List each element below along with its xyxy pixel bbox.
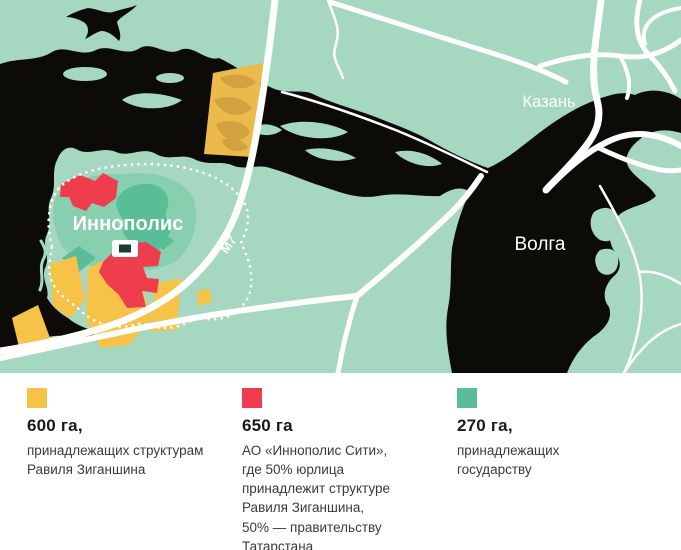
legend-swatch-red: [242, 388, 262, 408]
label-city: Казань: [522, 93, 575, 111]
legend-item-innopolis-city: 650 га АО «Иннополис Сити», где 50% юрли…: [242, 388, 447, 550]
infographic: Иннополис Казань Волга М7 600 га, принад…: [0, 0, 681, 550]
legend-item-ziganshin: 600 га, принадлежащих структурам Равиля …: [27, 388, 232, 479]
legend-description: АО «Иннополис Сити», где 50% юрлица прин…: [242, 441, 447, 550]
map: Иннополис Казань Волга М7: [0, 0, 681, 373]
legend-area-value: 600 га,: [27, 416, 232, 436]
legend: 600 га, принадлежащих структурам Равиля …: [0, 373, 681, 550]
label-river: Волга: [515, 234, 566, 255]
label-town: Иннополис: [73, 213, 184, 235]
legend-item-state: 270 га, принадлежащих государству: [457, 388, 662, 479]
legend-area-value: 650 га: [242, 416, 447, 436]
legend-swatch-teal: [457, 388, 477, 408]
campus-marker: [112, 240, 138, 257]
legend-area-value: 270 га,: [457, 416, 662, 436]
legend-description: принадлежащих государству: [457, 441, 662, 479]
legend-description: принадлежащих структурам Равиля Зиганшин…: [27, 441, 232, 479]
legend-swatch-yellow: [27, 388, 47, 408]
